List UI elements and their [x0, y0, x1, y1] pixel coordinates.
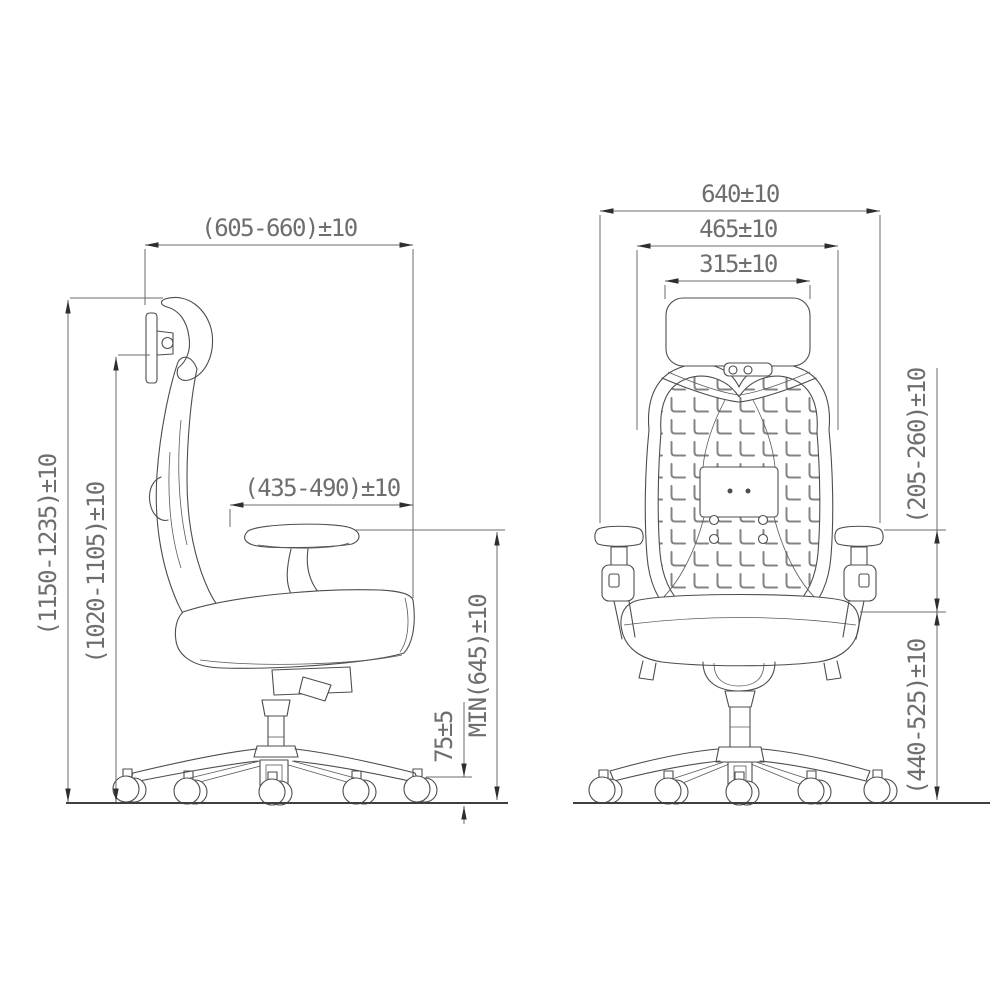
caster [404, 769, 437, 802]
dim-armrest-height-min-label: MIN(645)±10 [464, 595, 492, 737]
rear-base-leg-midright [746, 762, 808, 785]
rear-lumbar-plate [700, 467, 778, 517]
dim-seat-to-armrest-label: (205-260)±10 [903, 368, 931, 523]
caster [589, 770, 622, 803]
side-backrest-contour-2 [179, 420, 187, 545]
dim-seat-height-label: (440-525)±10 [903, 639, 931, 794]
dim-backrest-height-label: (1020-1105)±10 [82, 482, 110, 663]
rear-plate-dot [728, 489, 733, 494]
dim-overall-width-label: 640±10 [701, 180, 779, 208]
side-base-leg-midleft [190, 761, 268, 783]
side-headrest-pivot [162, 338, 173, 349]
rear-plate-dot [746, 489, 751, 494]
rear-base-leg-left [610, 749, 720, 781]
side-armrest-pad [245, 524, 359, 547]
rear-headrest [666, 298, 810, 366]
side-lumbar-knob [149, 477, 168, 520]
rear-underseat-bracket-inner [714, 663, 764, 686]
caster [174, 771, 207, 804]
dim-seat-height: (440-525)±10 [903, 612, 937, 800]
rear-gas-lift-cone [725, 691, 755, 707]
rear-seat-tab-left [639, 661, 656, 680]
dim-headrest-width: 315±10 [665, 250, 810, 299]
side-backrest-contour [169, 452, 181, 568]
caster [113, 769, 146, 802]
side-seat [175, 590, 414, 669]
dim-overall-height-label: (1150-1235)±10 [34, 454, 62, 635]
dim-caster-height-label: 75±5 [430, 711, 458, 763]
side-gas-lift-cone [262, 700, 290, 716]
caster [798, 771, 831, 804]
rear-base-leg-right [760, 749, 870, 781]
rear-headrest-bolt [744, 366, 752, 374]
rear-seat [621, 595, 859, 666]
rear-base-hub [716, 747, 764, 762]
dim-overall-depth-label: (605-660)±10 [201, 214, 356, 242]
dim-seat-depth: (435-490)±10 [230, 474, 413, 527]
dim-backrest-height: (1020-1105)±10 [82, 355, 150, 802]
dim-seat-depth-label: (435-490)±10 [244, 474, 399, 502]
rear-headrest-bolt [729, 366, 737, 374]
technical-drawing-page: (605-660)±10 (1150-1235)±10 (1020-1105)±… [0, 0, 1000, 1000]
side-backrest-front-edge [187, 369, 250, 633]
dim-headrest-width-label: 315±10 [699, 250, 777, 278]
side-headrest-bracket [146, 313, 157, 383]
side-base-hub [254, 746, 298, 757]
caster [655, 771, 688, 804]
chair-dimension-drawing: (605-660)±10 (1150-1235)±10 (1020-1105)±… [0, 0, 1000, 1000]
rear-seat-tab-right [824, 661, 841, 680]
dim-backrest-width-label: 465±10 [699, 215, 777, 243]
